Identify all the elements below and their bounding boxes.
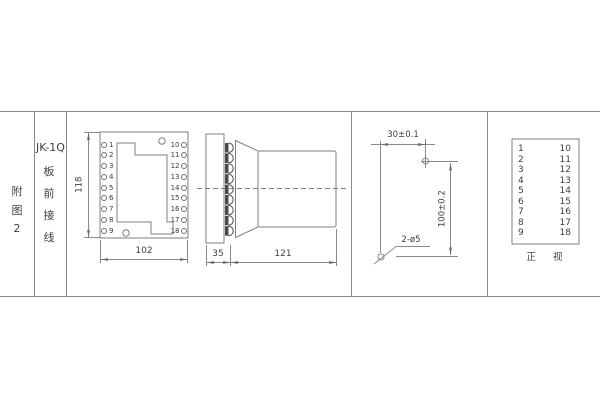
index-char-1: 附 (10, 186, 24, 198)
pin-row: 11 (166, 151, 187, 160)
pin-circle (101, 163, 107, 169)
title-char-4: 线 (42, 232, 56, 244)
pin-number: 9 (109, 227, 113, 235)
table-cell-left: 4 (518, 177, 524, 186)
table-row: 413 (518, 177, 571, 186)
table-cell-left: 2 (518, 156, 524, 165)
pin-circle (101, 217, 107, 223)
pin-row: 7 (101, 205, 118, 214)
dim-121-label: 121 (260, 250, 306, 260)
table-cell-left: 3 (518, 166, 524, 175)
pin-number: 12 (171, 162, 180, 170)
model-label: JK-1Q (35, 142, 66, 154)
table-row: 514 (518, 187, 571, 196)
pin-row: 10 (166, 140, 187, 149)
pin-circle (101, 174, 107, 180)
dim-100-label: 100±0.2 (438, 185, 447, 233)
table-cell-right: 10 (560, 145, 571, 154)
pin-row: 6 (101, 194, 118, 203)
dim-30-label: 30±0.1 (380, 131, 426, 140)
table-row: 918 (518, 229, 571, 238)
drawing-linework (0, 0, 600, 400)
dim-35-label: 35 (205, 250, 231, 260)
table-cell-left: 6 (518, 198, 524, 207)
table-cell-left: 1 (518, 145, 524, 154)
table-row: 312 (518, 166, 571, 175)
table-cell-left: 5 (518, 187, 524, 196)
title-char-3: 接 (42, 210, 56, 222)
pin-number: 5 (109, 184, 113, 192)
mounting-hole-top (159, 138, 165, 144)
side-view-outline (197, 134, 348, 243)
pin-circle (101, 142, 107, 148)
figure-canvas: 附 图 2 JK-1Q 板 前 接 线 1 2 3 4 5 6 7 8 9 10… (0, 0, 600, 400)
table-row: 211 (518, 156, 571, 165)
front-view-left-pins: 1 2 3 4 5 6 7 8 9 (101, 140, 118, 235)
pin-row: 16 (166, 205, 187, 214)
holes-label: 2-ø5 (393, 236, 429, 245)
pin-table: 110 211 312 413 514 615 716 817 918 (512, 139, 579, 244)
pin-number: 16 (171, 205, 180, 213)
table-cell-right: 17 (560, 219, 571, 228)
pin-number: 14 (171, 184, 180, 192)
table-cell-right: 18 (560, 229, 571, 238)
pin-circle (101, 152, 107, 158)
pin-circle (101, 228, 107, 234)
side-view-terminals (225, 143, 233, 236)
pin-circle (181, 217, 187, 223)
pin-row: 17 (166, 215, 187, 224)
pin-circle (181, 142, 187, 148)
frame-lines (0, 112, 600, 297)
table-cell-right: 15 (560, 198, 571, 207)
pin-number: 4 (109, 173, 113, 181)
table-cell-left: 7 (518, 208, 524, 217)
pin-row: 12 (166, 162, 187, 171)
pin-row: 18 (166, 226, 187, 235)
pin-number: 3 (109, 162, 113, 170)
pin-circle (181, 206, 187, 212)
dim-102-label: 102 (124, 247, 164, 257)
pin-number: 6 (109, 194, 113, 202)
index-char-2: 图 (10, 205, 24, 217)
dim-118-label: 118 (75, 175, 84, 195)
table-cell-right: 13 (560, 177, 571, 186)
table-cell-left: 8 (518, 219, 524, 228)
table-row: 110 (518, 145, 571, 154)
dim-118-lines (84, 133, 100, 238)
pin-circle (181, 163, 187, 169)
pin-number: 7 (109, 205, 113, 213)
pin-number: 18 (171, 227, 180, 235)
pin-number: 13 (171, 173, 180, 181)
table-row: 615 (518, 198, 571, 207)
title-char-2: 前 (42, 188, 56, 200)
front-view-right-pins: 10 11 12 13 14 15 16 17 18 (166, 140, 187, 235)
pin-number: 1 (109, 141, 113, 149)
pin-number: 8 (109, 216, 113, 224)
pin-number: 10 (171, 141, 180, 149)
table-cell-right: 11 (560, 156, 571, 165)
pin-row: 14 (166, 183, 187, 192)
table-cell-right: 14 (560, 187, 571, 196)
pin-row: 2 (101, 151, 118, 160)
pin-circle (101, 185, 107, 191)
table-caption: 正 视 (512, 253, 584, 263)
pin-number: 11 (171, 151, 180, 159)
table-cell-right: 16 (560, 208, 571, 217)
pin-row: 8 (101, 215, 118, 224)
pin-row: 9 (101, 226, 118, 235)
pin-row: 1 (101, 140, 118, 149)
pin-number: 15 (171, 194, 180, 202)
table-cell-right: 12 (560, 166, 571, 175)
table-row: 817 (518, 219, 571, 228)
pin-number: 2 (109, 151, 113, 159)
pin-circle (181, 185, 187, 191)
pin-circle (181, 152, 187, 158)
pin-number: 17 (171, 216, 180, 224)
pin-circle (181, 174, 187, 180)
table-row: 716 (518, 208, 571, 217)
pin-row: 4 (101, 172, 118, 181)
title-char-1: 板 (42, 166, 56, 178)
pin-circle (101, 206, 107, 212)
pin-row: 13 (166, 172, 187, 181)
mounting-hole-bottom (123, 230, 129, 236)
pin-circle (101, 195, 107, 201)
table-cell-left: 9 (518, 229, 524, 238)
index-char-3: 2 (10, 223, 24, 235)
pin-row: 15 (166, 194, 187, 203)
pin-circle (181, 228, 187, 234)
pin-row: 3 (101, 162, 118, 171)
pin-row: 5 (101, 183, 118, 192)
pin-circle (181, 195, 187, 201)
